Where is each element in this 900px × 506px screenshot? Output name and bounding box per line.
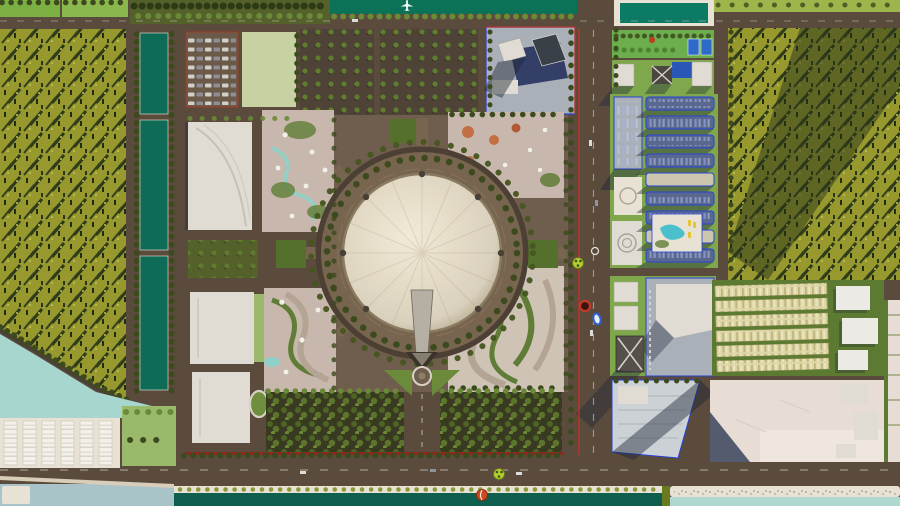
tree-square-north bbox=[390, 119, 416, 143]
traffic-signal-marker-south bbox=[494, 469, 505, 480]
red-pavilion bbox=[649, 37, 655, 43]
north-river bbox=[330, 0, 577, 14]
south-canal bbox=[174, 493, 662, 506]
field-pale bbox=[242, 32, 296, 107]
no-entry-marker bbox=[580, 301, 590, 311]
development-parcels bbox=[710, 380, 884, 462]
west-canal-strips bbox=[137, 33, 172, 392]
oval-driveway bbox=[250, 391, 268, 417]
traffic-signal-marker-north bbox=[573, 258, 584, 269]
tennis-court bbox=[688, 39, 699, 55]
exhibition-hall-c bbox=[192, 372, 250, 443]
lawn-southwest bbox=[122, 406, 176, 466]
tower-block-north bbox=[484, 27, 575, 114]
far-east-sector bbox=[710, 28, 900, 462]
garden-southwest bbox=[264, 288, 336, 392]
beachball-marker bbox=[477, 490, 488, 501]
exhibition-hall-b bbox=[190, 292, 254, 364]
tennis-court-2 bbox=[701, 39, 712, 55]
water-southeast bbox=[670, 497, 900, 506]
pier-southwest bbox=[2, 486, 30, 504]
north-blocks bbox=[186, 27, 575, 115]
pool-courtyard-block bbox=[652, 214, 702, 252]
masterplan-render bbox=[0, 0, 900, 506]
east-edge-strip bbox=[888, 300, 900, 462]
tree-square-west bbox=[276, 240, 306, 268]
